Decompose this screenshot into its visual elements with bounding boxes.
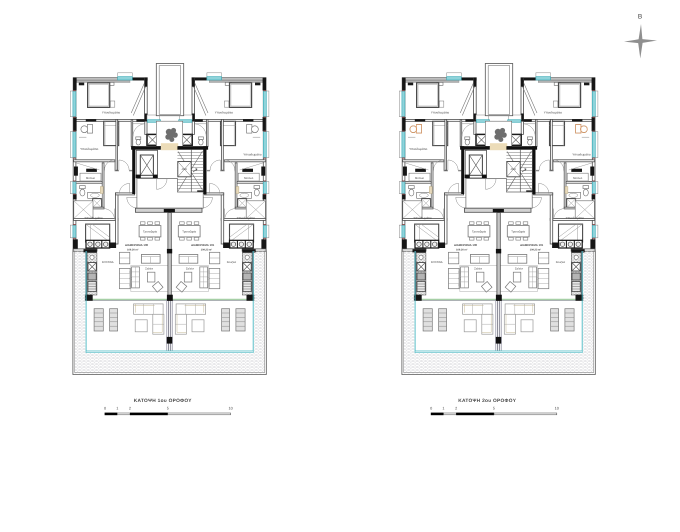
svg-text:Β: Β xyxy=(638,14,642,21)
svg-text:ΚΑΤΟΨΗ 2ου ΟΡΟΦΟΥ: ΚΑΤΟΨΗ 2ου ΟΡΟΦΟΥ xyxy=(458,398,517,404)
svg-text:ΚΑΤΟΨΗ 1ου ΟΡΟΦΟΥ: ΚΑΤΟΨΗ 1ου ΟΡΟΦΟΥ xyxy=(134,398,193,404)
